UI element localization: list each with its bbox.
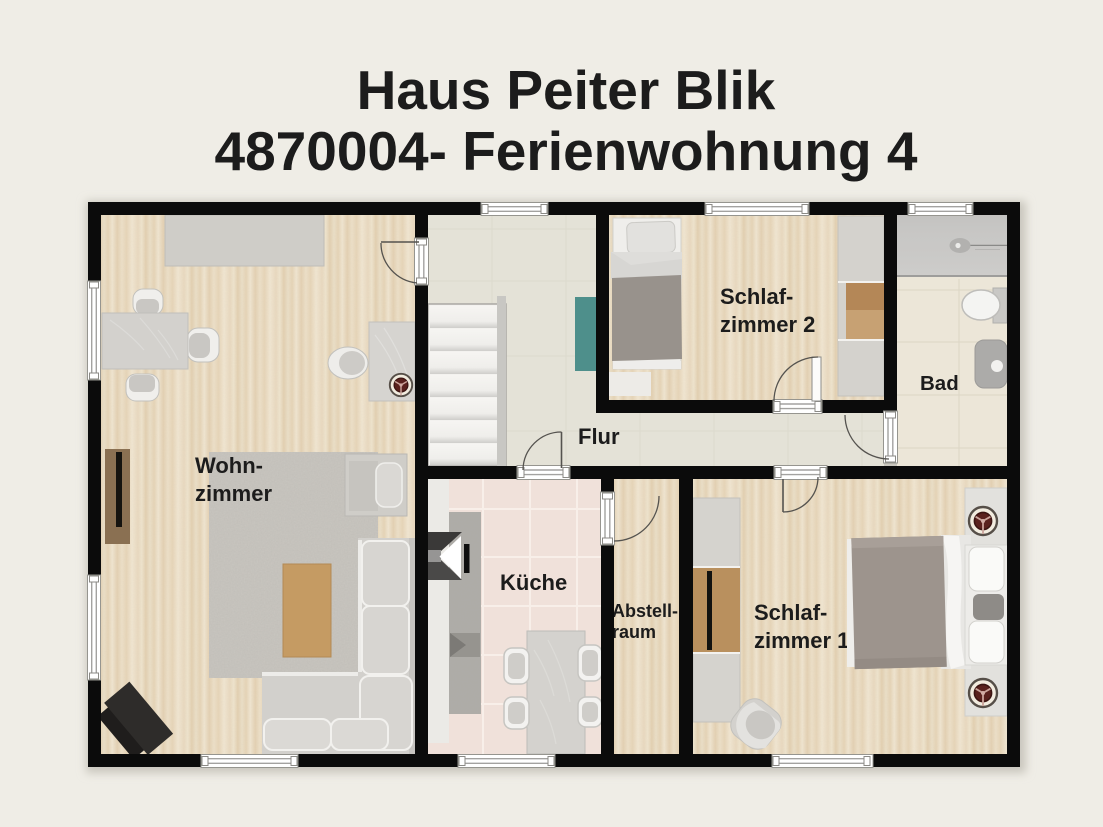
svg-text:zimmer 1: zimmer 1 [754,628,849,653]
svg-text:Flur: Flur [578,424,620,449]
svg-text:Wohn-: Wohn- [195,453,263,478]
svg-text:Abstell-: Abstell- [612,601,678,621]
svg-text:zimmer: zimmer [195,481,272,506]
svg-text:Schlaf-: Schlaf- [754,600,827,625]
svg-text:Schlaf-: Schlaf- [720,284,793,309]
svg-text:Haus Peiter Blik: Haus Peiter Blik [357,59,776,121]
svg-text:raum: raum [612,622,656,642]
svg-text:zimmer 2: zimmer 2 [720,312,815,337]
svg-text:Bad: Bad [920,372,959,395]
svg-text:Küche: Küche [500,570,567,595]
svg-text:4870004- Ferienwohnung 4: 4870004- Ferienwohnung 4 [215,120,918,182]
